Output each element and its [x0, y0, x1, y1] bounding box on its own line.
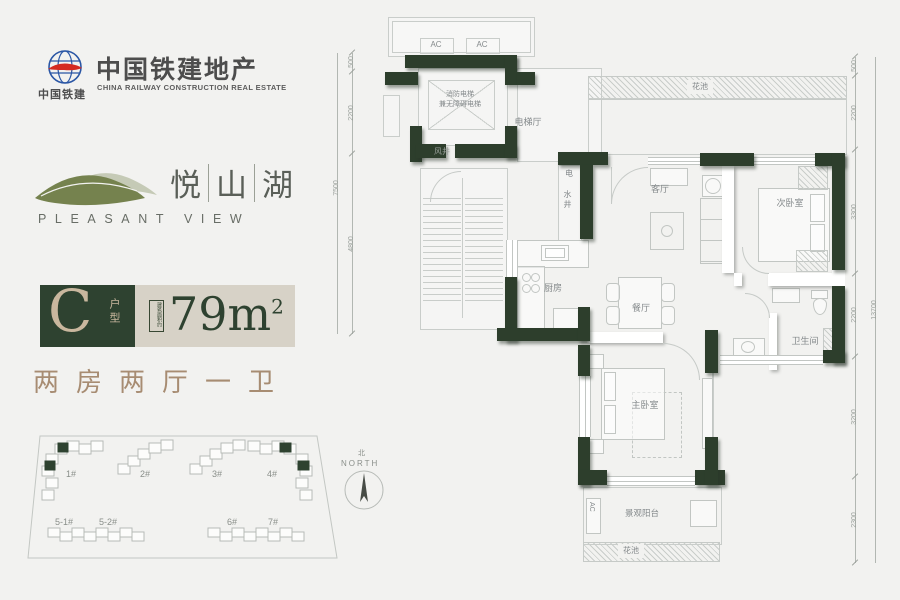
highlighted-unit: [45, 461, 55, 470]
dim-label: 3300: [850, 197, 860, 227]
toilet-bowl: [813, 298, 827, 315]
highlighted-unit: [58, 443, 68, 452]
project-name-char: 悦: [170, 160, 201, 205]
door-arc: [745, 293, 770, 318]
brand-title: 中国铁建地产: [96, 50, 258, 86]
wall: [705, 330, 718, 373]
flower-bed-bottom: [583, 542, 720, 562]
interior-wall: [722, 166, 734, 273]
stove-burner: [522, 273, 531, 282]
wall: [505, 55, 517, 85]
crcc-logo-icon: [42, 48, 88, 88]
dimension-line: [352, 53, 353, 334]
crcc-logo-caption: 中国铁建: [38, 86, 86, 102]
pillow: [810, 224, 825, 252]
floor-plan: AC AC 消防电梯 兼无障碍电梯 电梯厅 花池 电 水井 风井: [335, 8, 900, 592]
wall: [832, 153, 845, 270]
building-label: 3#: [212, 469, 222, 479]
wall-cap: [832, 270, 845, 286]
wall: [578, 470, 607, 485]
flower-bed-label: 花池: [618, 544, 644, 558]
water-shaft-label: 水井: [563, 190, 571, 210]
building-6-7: [208, 528, 304, 541]
highlighted-unit: [298, 461, 309, 470]
site-plan: 1# 2# 3# 4# 5-1# 5-2# 6# 7#: [22, 428, 342, 598]
elevator-label: 消防电梯: [430, 90, 490, 100]
unit-type-letter: C: [48, 277, 92, 345]
wall: [700, 153, 754, 166]
chair: [661, 306, 675, 325]
elevator-hall-label: 电梯厅: [503, 117, 553, 127]
balcony-door-window: [607, 476, 695, 486]
bath-label: 卫生间: [778, 336, 832, 346]
balcony-label: 景观阳台: [610, 508, 674, 518]
pillow: [604, 405, 616, 434]
wall: [705, 437, 718, 485]
wind-shaft-label: 风井: [427, 147, 457, 157]
wardrobe: [796, 250, 828, 272]
door-arc: [742, 247, 769, 274]
dim-label: 2300: [850, 505, 860, 535]
chair: [606, 283, 620, 302]
door-arc: [663, 343, 700, 380]
living-label: 客厅: [640, 184, 680, 194]
ac-label: AC: [466, 40, 498, 50]
dim-label: 2200: [850, 98, 860, 128]
nightstand: [589, 439, 604, 454]
window: [579, 376, 591, 437]
building-label: 6#: [227, 517, 237, 527]
chair: [606, 306, 620, 325]
master-label: 主卧室: [617, 400, 673, 410]
wall: [505, 126, 517, 158]
wardrobe: [798, 166, 828, 190]
electric-shaft-label: 电: [560, 169, 578, 179]
bedroom2-label: 次卧室: [765, 198, 815, 208]
project-logo-hills-icon: [33, 158, 161, 212]
chair: [661, 283, 675, 302]
bath-sink: [772, 288, 800, 303]
wall: [580, 165, 593, 239]
unit-area-value: 79m2: [169, 287, 284, 341]
divider: [254, 164, 255, 202]
terrace: [588, 98, 847, 155]
highlighted-unit: [280, 443, 291, 452]
wall: [558, 152, 608, 165]
window: [754, 157, 815, 165]
interior-wall: [734, 273, 742, 286]
building-label: 7#: [268, 517, 278, 527]
flower-bed-top: [588, 76, 847, 100]
window: [506, 240, 518, 277]
building-label: 1#: [66, 469, 76, 479]
dim-total-label: 7500: [332, 173, 342, 203]
dim-label: 2200: [850, 300, 860, 330]
building-label: 2#: [140, 469, 150, 479]
window: [720, 355, 823, 365]
stove-burner: [531, 273, 540, 282]
divider: [208, 164, 209, 202]
window: [648, 157, 700, 165]
building-4: [248, 441, 312, 500]
dim-total-label: 13700: [870, 295, 880, 325]
elevator-label: 兼无障碍电梯: [430, 100, 490, 110]
washer: [690, 500, 717, 527]
project-name: 悦 山 湖: [170, 160, 293, 205]
ac-label: AC: [588, 502, 595, 512]
wall: [385, 72, 418, 85]
building-label: 4#: [267, 469, 277, 479]
wall: [823, 350, 845, 363]
stove-burner: [522, 284, 531, 293]
kitchen-label: 厨房: [533, 283, 573, 293]
nightstand: [589, 354, 604, 369]
wall: [517, 72, 535, 85]
sofa: [700, 198, 724, 264]
wall: [405, 55, 517, 68]
pillow: [604, 372, 616, 401]
project-name-en: PLEASANT VIEW: [38, 212, 250, 226]
unit-area-note: 建筑面积约: [149, 300, 164, 332]
fridge: [553, 308, 579, 329]
interior-wall: [768, 273, 838, 286]
flower-bed-label: 花池: [687, 80, 713, 94]
dim-label: 2200: [347, 98, 357, 128]
building-label: 5-2#: [99, 517, 117, 527]
project-name-char: 湖: [262, 160, 293, 205]
ac-label: AC: [420, 40, 452, 50]
unit-area-box: 建筑面积约 79m2: [135, 285, 295, 347]
dim-label: 4800: [347, 229, 357, 259]
dim-label: 500: [850, 51, 860, 81]
dim-label: 500: [347, 47, 357, 77]
unit-type-box: C 户型: [40, 285, 135, 347]
brand-subtitle: CHINA RAILWAY CONSTRUCTION REAL ESTATE: [97, 83, 287, 92]
dining-label: 餐厅: [623, 303, 659, 313]
building-5: [48, 528, 144, 541]
unit-layout-text: 两房两厅一卫: [33, 362, 291, 399]
interior-wall: [587, 332, 663, 343]
wall: [578, 307, 590, 341]
project-name-char: 山: [216, 160, 247, 205]
building-label: 5-1#: [55, 517, 73, 527]
wall: [578, 345, 590, 376]
dim-label: 3200: [850, 402, 860, 432]
unit-type-badge: C 户型 建筑面积约 79m2: [40, 285, 295, 347]
page: { "brand": { "logo_text": "中国铁建", "title…: [0, 0, 900, 600]
wall: [497, 328, 587, 341]
unit-type-label: 户型: [106, 298, 122, 326]
